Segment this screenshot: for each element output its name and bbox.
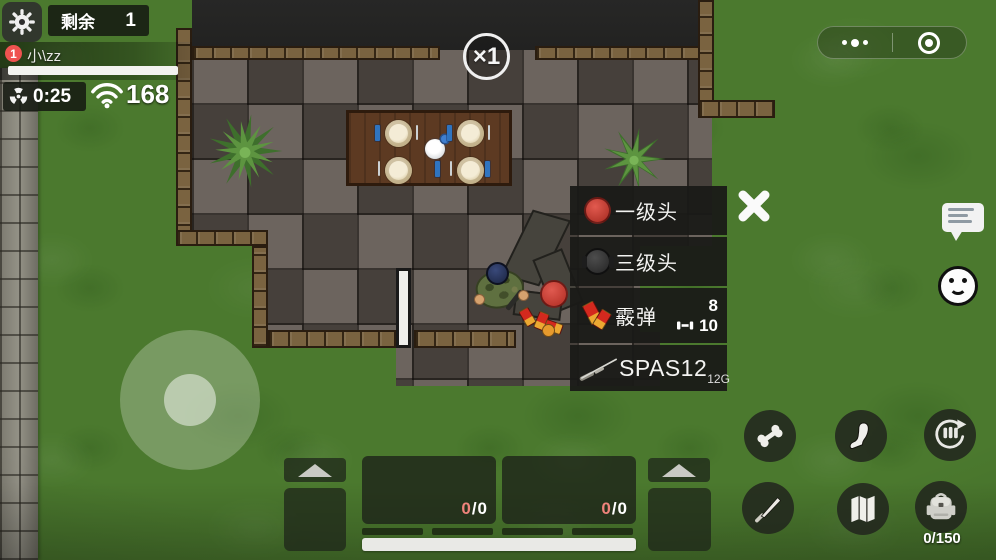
- remaining-label: 剩余: [61, 8, 95, 33]
- wall-left-lower: [252, 246, 268, 348]
- durability-segment: [572, 528, 633, 535]
- game-screen: ×1 剩余 1 1 小\zz: [0, 0, 996, 560]
- player-character: [468, 248, 542, 328]
- signal-wifi-icon: [90, 80, 124, 109]
- radiation-timer-box: 0:25: [3, 82, 86, 111]
- menu-dots-icon: [842, 39, 868, 47]
- speed-multiplier-badge[interactable]: ×1: [463, 33, 510, 80]
- chat-bubble-icon: [948, 208, 974, 211]
- wall-top-right: [535, 46, 700, 60]
- map-icon: [846, 492, 880, 526]
- wall-bottom-left: [268, 330, 396, 348]
- slot1-ammo-capacity: /0: [472, 499, 488, 518]
- arrow-up-icon: [662, 464, 696, 477]
- helmet-level3-icon: [584, 248, 611, 275]
- open-door: [396, 268, 411, 348]
- map-button[interactable]: [837, 483, 889, 535]
- health-bar: [8, 66, 178, 75]
- settings-button[interactable]: [2, 2, 42, 42]
- arrow-up-icon: [298, 464, 332, 477]
- slot1-ammo-current: 0: [461, 499, 471, 518]
- fern-plant-right: [594, 126, 674, 192]
- durability-segment: [362, 528, 423, 535]
- stamina-bar: [362, 538, 636, 551]
- loot-item-label: 三级头: [615, 247, 678, 276]
- durability-segment: [502, 528, 563, 535]
- miniprogram-capsule: [817, 26, 967, 59]
- backpack-icon: [923, 489, 959, 525]
- radiation-timer: 0:25: [33, 86, 71, 108]
- shell-count: 8: [709, 296, 718, 316]
- loot-item-label: 一级头: [615, 196, 678, 225]
- loot-item-helmet3[interactable]: 三级头: [570, 237, 727, 286]
- helmet-level1-icon: [584, 197, 611, 224]
- player-name: 小\zz: [27, 45, 61, 66]
- loot-item-helmet1[interactable]: 一级头: [570, 186, 727, 235]
- durability-segment: [432, 528, 493, 535]
- weapon-slot-2[interactable]: 0/0: [502, 456, 636, 524]
- gear-slot-left[interactable]: [284, 488, 346, 551]
- dining-table: [346, 110, 512, 186]
- chat-button[interactable]: [942, 203, 984, 232]
- gear-slot-right[interactable]: [648, 488, 711, 551]
- remaining-players-box: 剩余 1: [48, 5, 149, 36]
- loot-item-shells[interactable]: 霰弹 8 10: [570, 288, 727, 343]
- slot2-ammo-current: 0: [601, 499, 611, 518]
- wall-right-corner: [698, 100, 775, 118]
- bone-icon: [753, 419, 787, 453]
- joystick-knob[interactable]: [164, 374, 216, 426]
- knife-icon: [751, 491, 785, 525]
- ammo-bullet-icon: [677, 321, 694, 330]
- emote-button[interactable]: [938, 266, 978, 306]
- shell-capacity: 10: [699, 316, 718, 336]
- wall-bottom-right: [414, 330, 516, 348]
- reload-ammo-icon: [932, 417, 968, 453]
- exit-button[interactable]: [893, 27, 967, 58]
- footstep-button[interactable]: [835, 410, 887, 462]
- wall-corner: [176, 230, 268, 246]
- loot-item-label: 霰弹: [615, 301, 657, 330]
- fern-plant-left: [196, 112, 294, 190]
- swap-left-button[interactable]: [284, 458, 346, 482]
- foot-icon: [845, 420, 877, 452]
- signal-strength: 168: [126, 79, 169, 110]
- player-status-strip: 1 小\zz: [0, 42, 192, 80]
- loot-item-label: SPAS12: [619, 355, 707, 382]
- melee-weapon-button[interactable]: [742, 482, 794, 534]
- shotgun-icon: [579, 353, 619, 383]
- remaining-value: 1: [125, 10, 136, 32]
- chat-bubble-tail: [950, 230, 963, 241]
- menu-button[interactable]: [818, 27, 892, 58]
- record-circle-icon: [918, 32, 940, 54]
- wall-right: [698, 0, 714, 110]
- loot-panel: 一级头 三级头 霰弹 8: [570, 186, 727, 391]
- loot-close-button[interactable]: [735, 187, 773, 225]
- backpack-button[interactable]: [915, 481, 967, 533]
- swap-right-button[interactable]: [648, 458, 710, 482]
- backpack-capacity: 0/150: [905, 530, 979, 547]
- stone-path: [0, 68, 38, 560]
- shotgun-shells-icon: [582, 301, 612, 331]
- unexplored-room: [192, 0, 700, 50]
- caliber-label: 12G: [707, 372, 730, 391]
- reload-button[interactable]: [924, 409, 976, 461]
- gear-icon: [8, 8, 36, 36]
- bone-button[interactable]: [744, 410, 796, 462]
- slot2-ammo-capacity: /0: [612, 499, 628, 518]
- radiation-icon: [9, 87, 28, 106]
- weapon-slot-1[interactable]: 0/0: [362, 456, 496, 524]
- rank-badge: 1: [5, 45, 22, 62]
- loot-item-spas12[interactable]: SPAS12 12G: [570, 345, 727, 391]
- health-bar-fill: [8, 66, 178, 75]
- wall-top-left: [192, 46, 440, 60]
- speed-multiplier-label: ×1: [473, 43, 500, 71]
- close-icon: [736, 188, 772, 224]
